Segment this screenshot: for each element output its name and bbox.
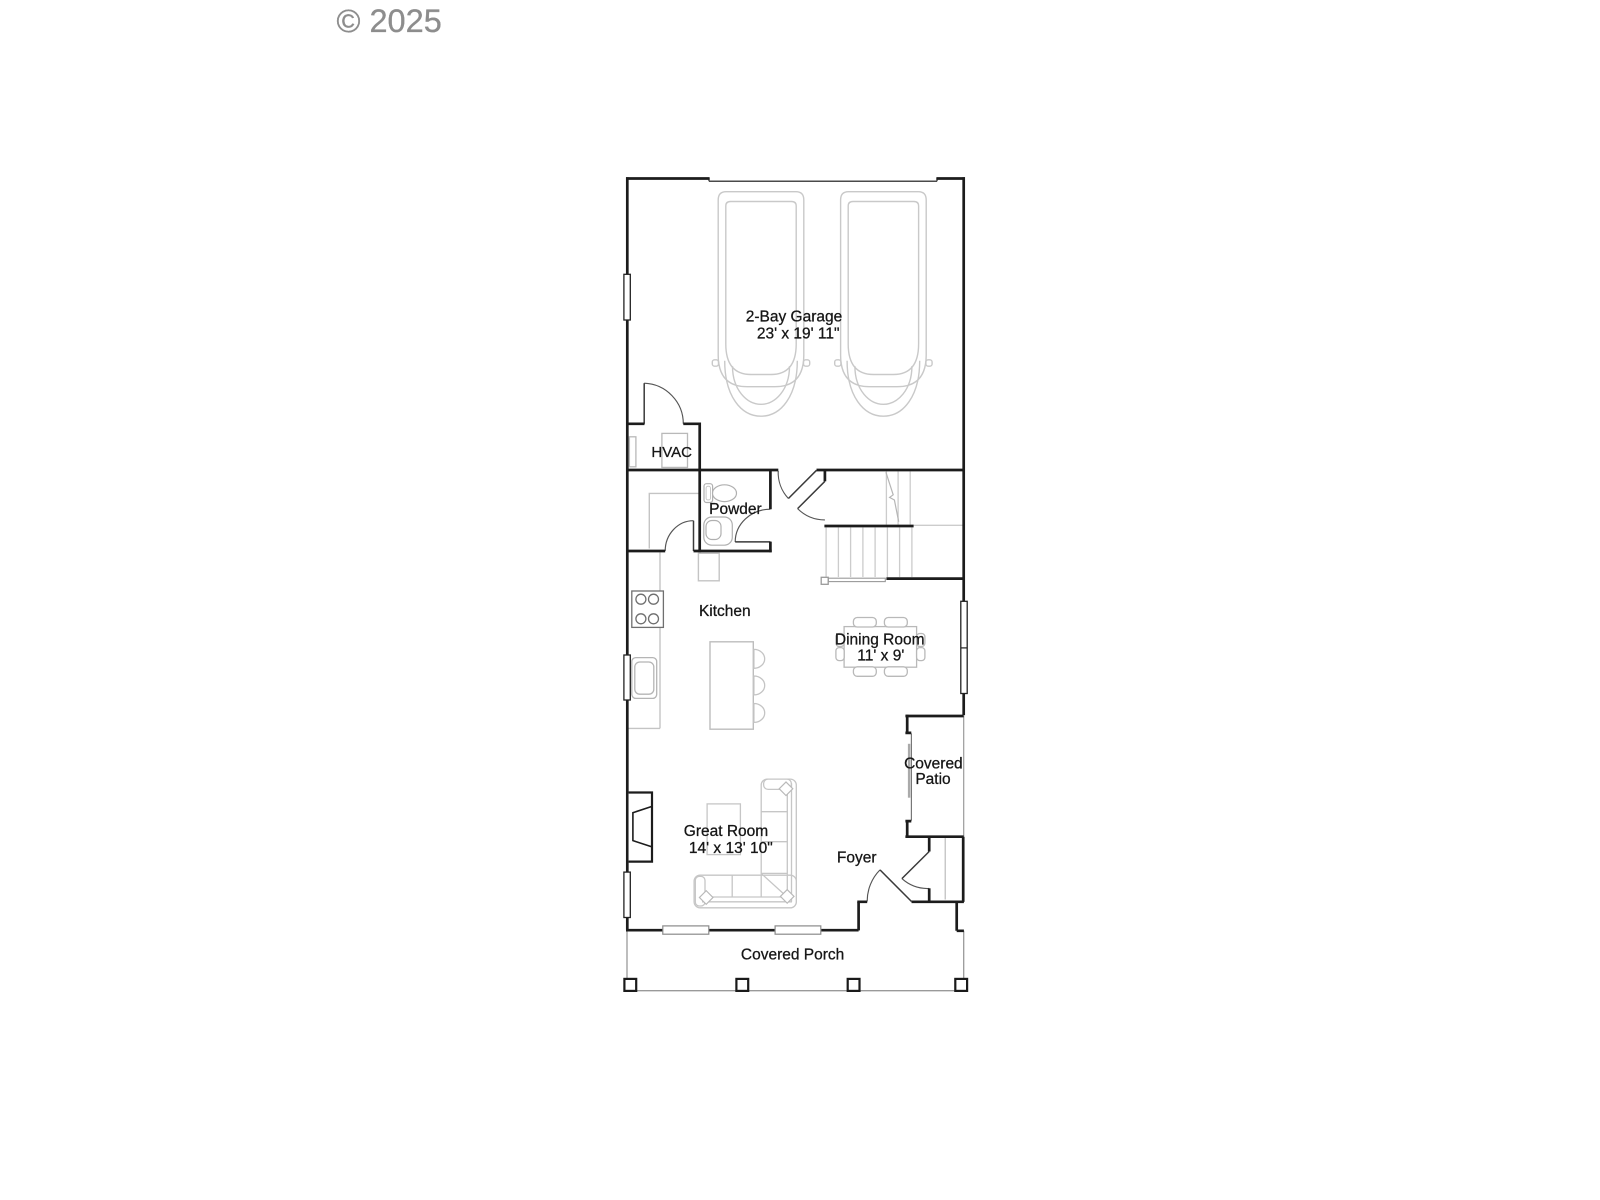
svg-text:Covered: Covered — [904, 755, 963, 772]
svg-text:HVAC: HVAC — [651, 444, 692, 461]
svg-text:Dining Room: Dining Room — [835, 631, 925, 648]
svg-text:23' x 19' 11": 23' x 19' 11" — [757, 326, 840, 343]
svg-text:11' x 9': 11' x 9' — [857, 648, 904, 665]
svg-text:© 2025: © 2025 — [337, 3, 442, 39]
svg-text:2-Bay Garage: 2-Bay Garage — [746, 309, 843, 326]
svg-text:Foyer: Foyer — [837, 850, 877, 867]
svg-text:Great Room: Great Room — [684, 823, 768, 840]
svg-text:14' x 13' 10": 14' x 13' 10" — [689, 840, 773, 857]
svg-text:Kitchen: Kitchen — [699, 603, 751, 620]
svg-text:Patio: Patio — [915, 771, 950, 788]
svg-text:Powder: Powder — [709, 501, 762, 518]
svg-text:Covered Porch: Covered Porch — [741, 946, 844, 963]
